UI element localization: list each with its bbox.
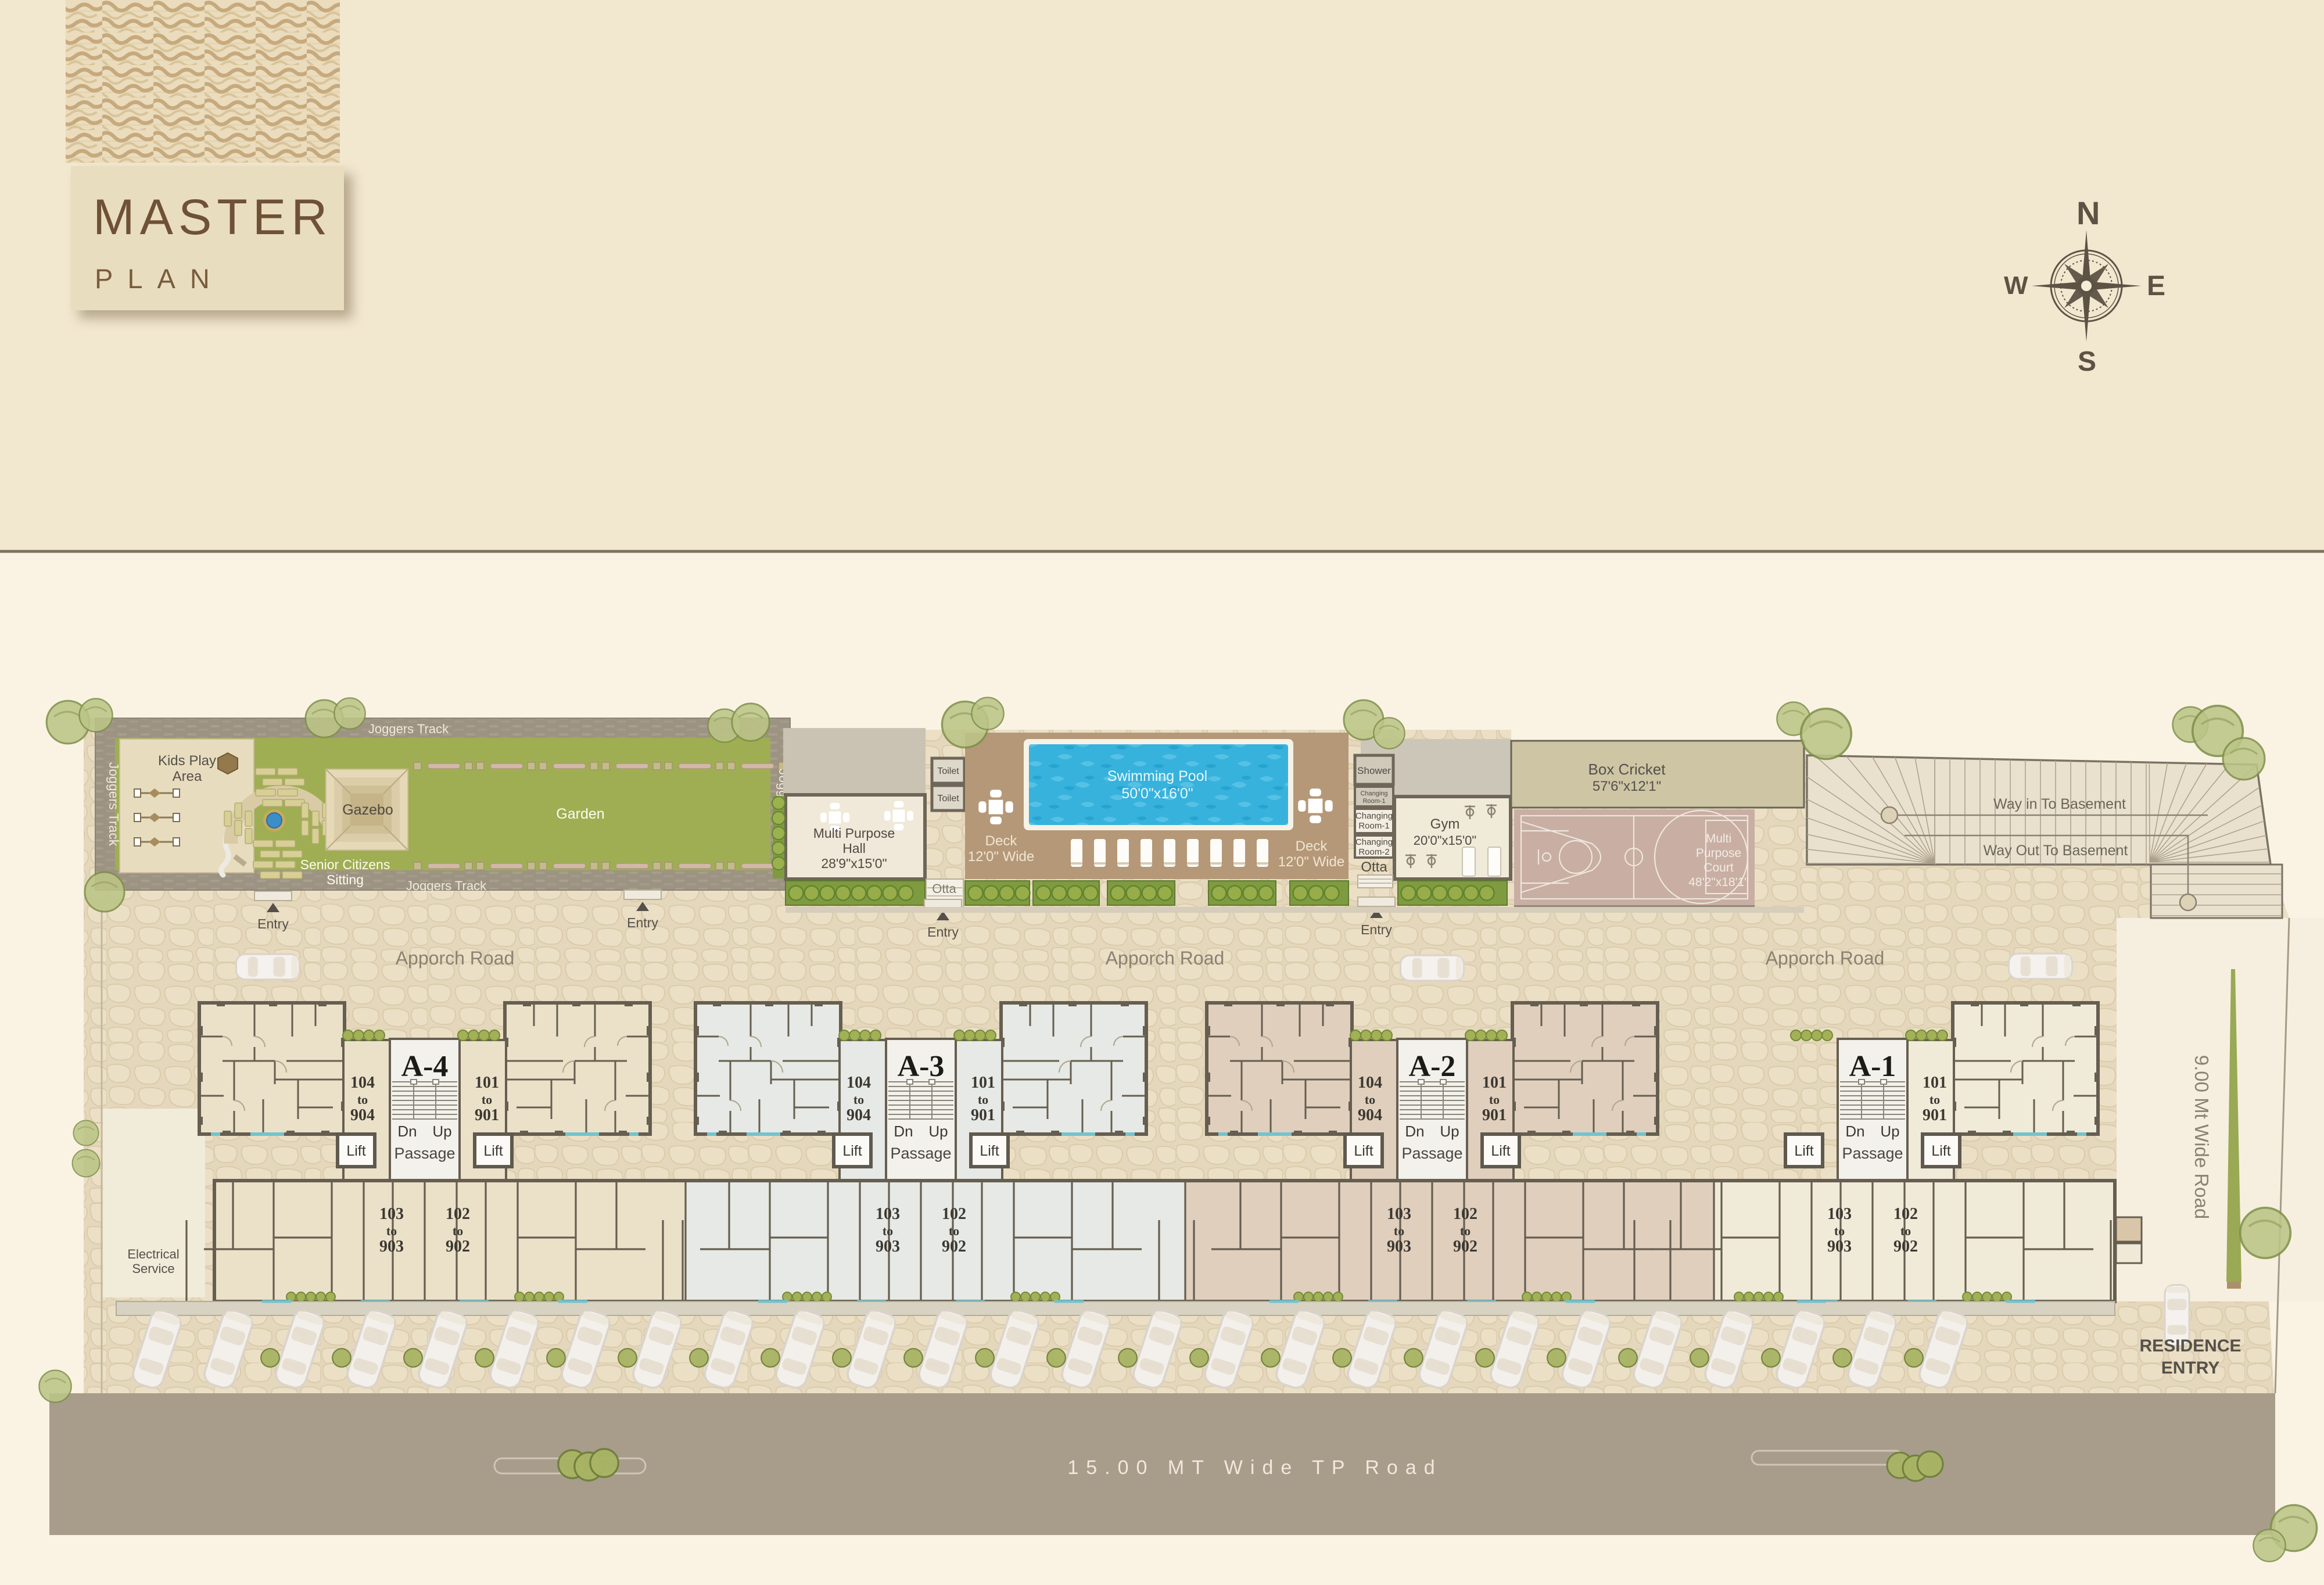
svg-text:N: N [2076,195,2100,231]
svg-text:103: 103 [1387,1205,1411,1223]
svg-text:Changing: Changing [1355,811,1393,821]
svg-text:48'2"x18'1": 48'2"x18'1" [1688,876,1749,889]
svg-text:Swimming Pool: Swimming Pool [1107,768,1207,784]
svg-text:Deck: Deck [985,833,1018,849]
svg-text:Dn: Dn [1845,1123,1864,1140]
svg-text:Shower: Shower [1357,765,1391,776]
svg-text:Purpose: Purpose [1696,847,1741,860]
svg-text:Service: Service [132,1261,174,1276]
svg-text:901: 901 [1482,1106,1507,1124]
svg-text:102: 102 [1893,1205,1918,1223]
svg-text:Sitting: Sitting [327,872,364,887]
svg-text:Multi Purpose: Multi Purpose [813,826,895,841]
svg-text:Lift: Lift [1794,1143,1813,1159]
svg-text:Joggers Track: Joggers Track [368,722,449,736]
svg-text:A-4: A-4 [401,1050,449,1083]
svg-text:12'0" Wide: 12'0" Wide [968,849,1035,865]
svg-text:Entry: Entry [927,924,959,939]
svg-text:ENTRY: ENTRY [2161,1358,2220,1378]
svg-text:Entry: Entry [1361,922,1392,937]
svg-text:S: S [2078,346,2096,377]
svg-text:Passage: Passage [1842,1145,1903,1162]
svg-text:Deck: Deck [1296,838,1328,854]
svg-text:901: 901 [1923,1106,1947,1124]
svg-text:Toilet: Toilet [937,766,959,776]
svg-text:Hall: Hall [842,841,866,856]
svg-text:Way Out To Basement: Way Out To Basement [1984,842,2128,859]
svg-text:Room-2: Room-2 [1358,847,1389,857]
svg-text:Lift: Lift [980,1143,999,1159]
svg-text:to: to [883,1224,893,1238]
svg-text:Gym: Gym [1430,816,1460,832]
svg-text:57'6"x12'1": 57'6"x12'1" [1593,779,1661,794]
svg-text:Electrical: Electrical [127,1247,179,1261]
svg-text:to: to [1489,1092,1500,1107]
svg-text:to: to [482,1092,492,1107]
svg-text:902: 902 [1453,1238,1477,1256]
svg-text:Dn: Dn [397,1123,417,1140]
svg-text:Dn: Dn [894,1123,913,1140]
svg-text:Court: Court [1703,861,1734,874]
svg-text:902: 902 [446,1238,470,1256]
svg-text:RESIDENCE: RESIDENCE [2139,1336,2241,1356]
svg-text:Apporch Road: Apporch Road [1106,948,1225,969]
svg-text:A-2: A-2 [1409,1050,1456,1083]
svg-text:Joggers Track: Joggers Track [406,878,487,893]
svg-text:Up: Up [1880,1123,1899,1140]
svg-text:904: 904 [1358,1106,1382,1124]
svg-text:Joggers Track: Joggers Track [106,762,121,847]
svg-text:903: 903 [876,1238,900,1256]
svg-text:15.00 MT Wide TP Road: 15.00 MT Wide TP Road [1067,1457,1442,1479]
svg-text:104: 104 [350,1074,375,1092]
svg-text:903: 903 [1827,1238,1852,1256]
svg-text:Up: Up [928,1123,948,1140]
svg-text:102: 102 [1453,1205,1477,1223]
svg-text:902: 902 [942,1238,966,1256]
svg-text:to: to [853,1092,864,1107]
svg-text:50'0"x16'0": 50'0"x16'0" [1121,786,1193,802]
svg-text:W: W [2004,271,2028,300]
svg-text:903: 903 [379,1238,404,1256]
svg-text:Passage: Passage [394,1145,455,1162]
svg-text:104: 104 [1358,1074,1382,1092]
svg-text:to: to [1460,1224,1471,1238]
svg-text:to: to [978,1092,988,1107]
svg-text:Lift: Lift [1931,1143,1950,1159]
svg-text:to: to [1900,1224,1911,1238]
svg-text:101: 101 [1923,1074,1947,1092]
svg-text:Passage: Passage [1401,1145,1462,1162]
svg-text:9.00 Mt Wide Road: 9.00 Mt Wide Road [2191,1055,2212,1219]
svg-text:Room-1: Room-1 [1358,821,1389,831]
svg-text:E: E [2147,271,2165,302]
svg-text:Changing: Changing [1360,790,1387,797]
svg-text:to: to [1394,1224,1404,1238]
svg-text:104: 104 [847,1074,871,1092]
svg-text:Entry: Entry [627,915,658,930]
svg-text:Apporch Road: Apporch Road [396,948,515,969]
svg-text:Changing: Changing [1355,837,1393,847]
svg-text:A-3: A-3 [898,1050,945,1083]
svg-text:Lift: Lift [483,1143,503,1159]
svg-text:Area: Area [173,769,202,784]
svg-text:103: 103 [379,1205,404,1223]
svg-text:Otta: Otta [1361,859,1387,875]
svg-text:Garden: Garden [556,806,604,822]
svg-text:901: 901 [475,1106,499,1124]
svg-text:Senior Citizens: Senior Citizens [300,857,390,872]
svg-text:Way in To Basement: Way in To Basement [1993,796,2126,812]
svg-text:Lift: Lift [346,1143,365,1159]
svg-text:Lift: Lift [842,1143,862,1159]
svg-text:A-1: A-1 [1849,1050,1896,1083]
svg-text:Box Cricket: Box Cricket [1588,761,1666,778]
svg-text:Lift: Lift [1354,1143,1373,1159]
svg-text:Multi: Multi [1706,832,1731,845]
svg-text:to: to [949,1224,959,1238]
svg-text:Otta: Otta [932,881,956,896]
svg-text:903: 903 [1387,1238,1411,1256]
svg-text:to: to [1930,1092,1940,1107]
svg-text:to: to [1834,1224,1845,1238]
svg-text:20'0"x15'0": 20'0"x15'0" [1414,833,1476,848]
svg-text:101: 101 [1482,1074,1507,1092]
svg-text:Lift: Lift [1491,1143,1510,1159]
svg-text:Kids Play: Kids Play [158,753,216,769]
svg-text:Gazebo: Gazebo [342,802,393,818]
svg-text:MASTER: MASTER [93,189,332,245]
svg-text:904: 904 [847,1106,871,1124]
svg-text:Apporch Road: Apporch Road [1766,948,1885,969]
svg-text:Up: Up [432,1123,451,1140]
svg-text:to: to [1365,1092,1375,1107]
svg-text:Entry: Entry [257,916,289,931]
svg-text:904: 904 [350,1106,375,1124]
svg-text:101: 101 [475,1074,499,1092]
svg-text:103: 103 [1827,1205,1852,1223]
svg-text:Room-1: Room-1 [1362,798,1385,805]
svg-text:101: 101 [971,1074,995,1092]
svg-text:to: to [386,1224,397,1238]
svg-text:102: 102 [942,1205,966,1223]
svg-text:901: 901 [971,1106,995,1124]
svg-text:Toilet: Toilet [937,794,959,804]
svg-text:PLAN: PLAN [95,263,224,294]
svg-text:902: 902 [1893,1238,1918,1256]
svg-text:12'0" Wide: 12'0" Wide [1278,854,1345,870]
svg-text:103: 103 [876,1205,900,1223]
svg-text:to: to [357,1092,368,1107]
svg-text:Up: Up [1440,1123,1459,1140]
svg-text:Dn: Dn [1405,1123,1424,1140]
svg-text:28'9"x15'0": 28'9"x15'0" [821,856,887,871]
svg-text:to: to [453,1224,463,1238]
svg-text:Passage: Passage [890,1145,951,1162]
svg-text:102: 102 [446,1205,470,1223]
